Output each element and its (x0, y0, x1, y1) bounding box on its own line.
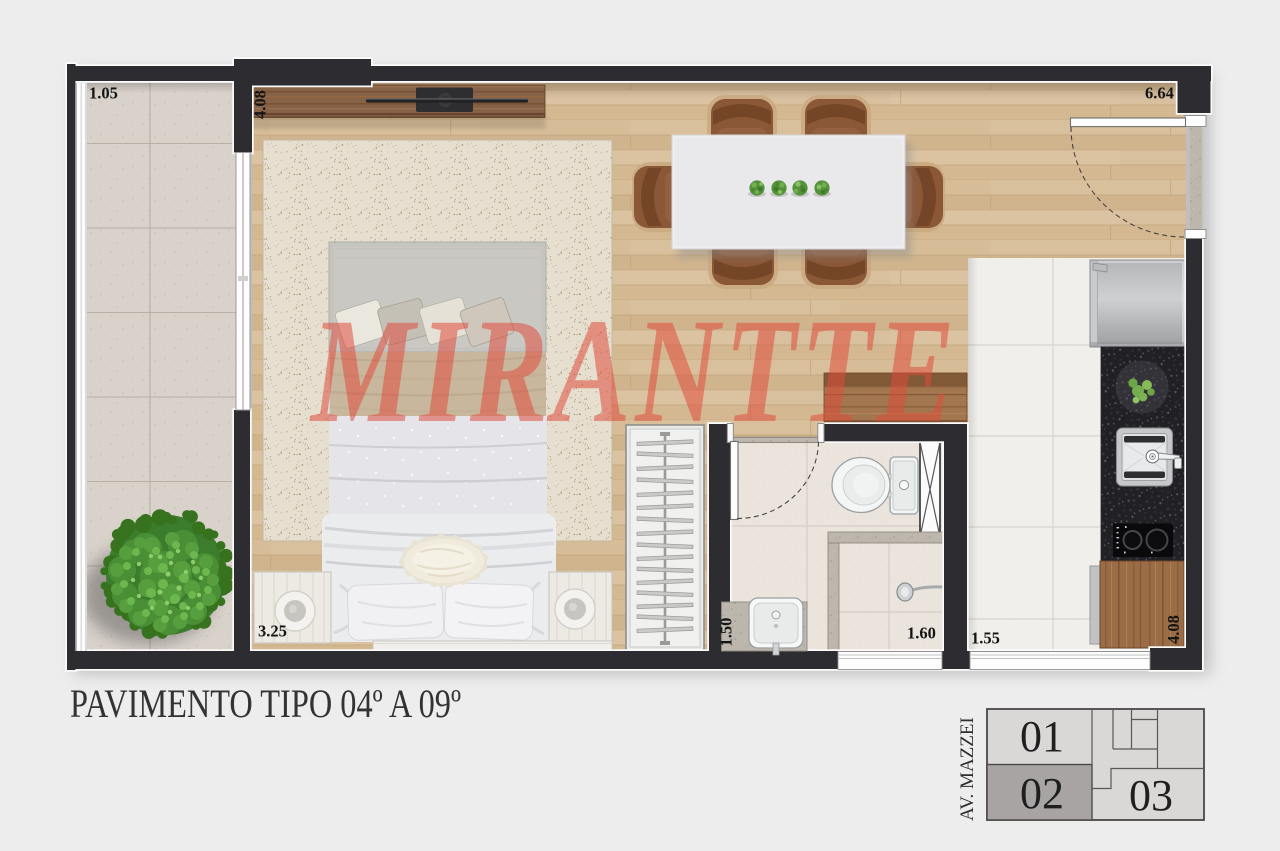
svg-text:PAVIMENTO TIPO 04º A 09º: PAVIMENTO TIPO 04º A 09º (70, 681, 461, 726)
svg-text:1.50: 1.50 (717, 618, 736, 647)
svg-text:3.25: 3.25 (258, 622, 287, 641)
svg-text:4.08: 4.08 (251, 90, 270, 119)
svg-text:MIRANTTE: MIRANTTE (309, 288, 959, 454)
svg-text:01: 01 (1020, 712, 1064, 761)
svg-text:1.55: 1.55 (971, 629, 1000, 648)
svg-text:02: 02 (1020, 769, 1064, 818)
svg-text:AV. MAZZEI: AV. MAZZEI (957, 717, 978, 821)
svg-text:1.60: 1.60 (907, 624, 936, 643)
svg-text:1.05: 1.05 (89, 84, 118, 103)
svg-text:03: 03 (1129, 771, 1173, 820)
svg-text:4.08: 4.08 (1164, 615, 1183, 644)
svg-text:6.64: 6.64 (1145, 84, 1174, 103)
